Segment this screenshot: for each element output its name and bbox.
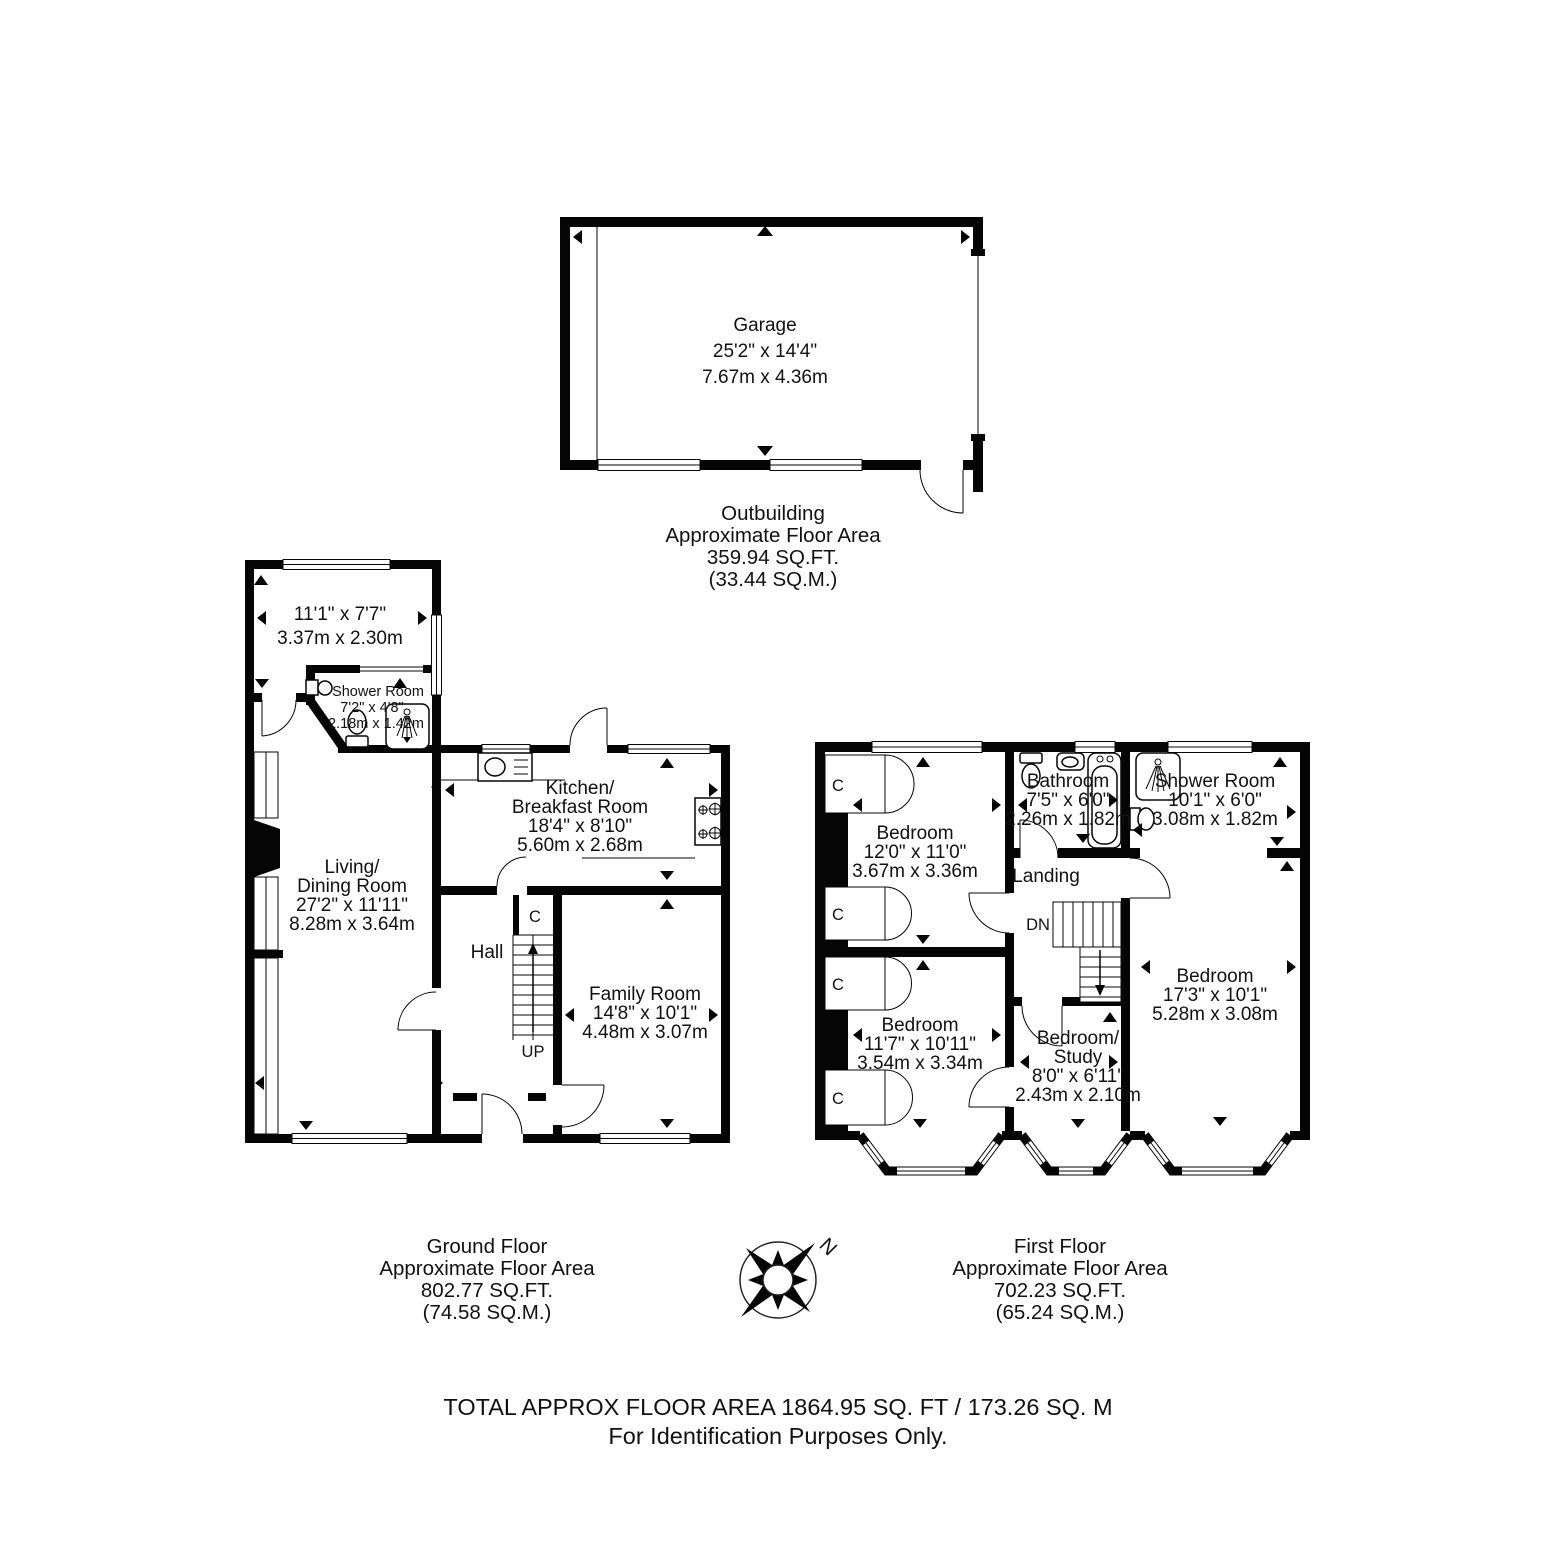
- bedroom3-name: Bedroom: [1176, 966, 1253, 987]
- ground-floor-caption: Ground Floor Approximate Floor Area 802.…: [379, 1235, 595, 1324]
- ground-caption-sqm: (74.58 SQ.M.): [423, 1301, 552, 1324]
- garage-plan: Garage 25'2" x 14'4" 7.67m x 4.36m: [560, 217, 985, 513]
- first-floor-bay-windows: [860, 1135, 1290, 1171]
- first-caption-title: First Floor: [1014, 1235, 1106, 1258]
- ground-floor-stairs: [513, 935, 553, 1040]
- outbuilding-caption-area-label: Approximate Floor Area: [665, 524, 881, 547]
- first-caption-sqm: (65.24 SQ.M.): [996, 1301, 1125, 1324]
- family-room-dims-metric: 4.48m x 3.07m: [582, 1022, 708, 1043]
- ground-floor-plan: 11'1" x 7'7" 3.37m x 2.30m Shower Room 7…: [245, 560, 730, 1145]
- kitchen-dims-metric: 5.60m x 2.68m: [517, 835, 643, 856]
- kitchen-name-1: Kitchen/: [546, 778, 615, 799]
- living-room-dims-imperial: 27'2" x 11'11": [296, 895, 408, 916]
- ff-shower-dims-imperial: 10'1" x 6'0": [1168, 790, 1262, 811]
- bedroom2-dims-imperial: 11'7" x 10'11": [864, 1034, 976, 1055]
- first-caption-sqft: 702.23 SQ.FT.: [994, 1279, 1126, 1302]
- first-floor-plan: Bedroom 12'0" x 11'0" 3.67m x 3.36m Bath…: [815, 742, 1310, 1172]
- top-room-dims-metric: 3.37m x 2.30m: [277, 628, 403, 649]
- kitchen-name-2: Breakfast Room: [512, 797, 648, 818]
- garage-entry-door: [920, 470, 963, 513]
- ground-caption-sqft: 802.77 SQ.FT.: [421, 1279, 553, 1302]
- living-room-name-1: Living/: [325, 857, 381, 878]
- ground-caption-title: Ground Floor: [427, 1235, 548, 1258]
- first-floor-stairs: [1053, 902, 1121, 1002]
- garage-windows: [598, 256, 984, 471]
- ground-caption-area-label: Approximate Floor Area: [379, 1257, 595, 1280]
- garage-dims-metric: 7.67m x 4.36m: [702, 367, 828, 388]
- garage-room-name: Garage: [733, 315, 796, 336]
- bedroom3-dims-metric: 5.28m x 3.08m: [1152, 1004, 1278, 1025]
- sink-icon: [306, 680, 318, 695]
- compass-rose: N: [740, 1234, 841, 1318]
- landing-name: Landing: [1012, 866, 1080, 887]
- outbuilding-caption-sqft: 359.94 SQ.FT.: [707, 546, 839, 569]
- closet-label: C: [832, 1090, 844, 1108]
- living-room-name-2: Dining Room: [297, 876, 407, 897]
- family-room-dims-imperial: 14'8" x 10'1": [593, 1003, 697, 1024]
- study-dims-metric: 2.43m x 2.10m: [1015, 1085, 1141, 1106]
- closet-label: C: [529, 908, 541, 926]
- family-room-name: Family Room: [589, 984, 701, 1005]
- toilet-icon: [1020, 753, 1042, 763]
- closet-label: C: [832, 976, 844, 994]
- bathroom-dims-imperial: 7'5" x 6'0": [1026, 790, 1109, 811]
- bedroom2-dims-metric: 3.54m x 3.34m: [857, 1053, 983, 1074]
- first-floor-caption: First Floor Approximate Floor Area 702.2…: [952, 1235, 1168, 1324]
- closet-label: C: [832, 906, 844, 924]
- bedroom2-name: Bedroom: [881, 1015, 958, 1036]
- compass-north-label: N: [815, 1234, 842, 1261]
- garage-dims-imperial: 25'2" x 14'4": [713, 341, 817, 362]
- shower-room-name: Shower Room: [332, 684, 424, 700]
- outbuilding-caption: Outbuilding Approximate Floor Area 359.9…: [665, 502, 881, 591]
- first-caption-area-label: Approximate Floor Area: [952, 1257, 1168, 1280]
- bedroom3-dims-imperial: 17'3" x 10'1": [1163, 985, 1267, 1006]
- shower-room-dims-metric: 2.18m x 1.42m: [328, 716, 424, 732]
- footer-disclaimer: For Identification Purposes Only.: [608, 1423, 947, 1449]
- shower-room-dims-imperial: 7'2" x 4'8": [340, 700, 403, 716]
- bedroom1-name: Bedroom: [876, 823, 953, 844]
- stairs-down-label: DN: [1026, 916, 1050, 934]
- study-dims-imperial: 8'0" x 6'11": [1032, 1066, 1124, 1087]
- top-room-dims-imperial: 11'1" x 7'7": [294, 604, 386, 625]
- closet-label: C: [832, 777, 844, 795]
- bathroom-name: Bathroom: [1027, 771, 1109, 792]
- bedroom1-dims-metric: 3.67m x 3.36m: [852, 861, 978, 882]
- ground-floor-arrows: [254, 575, 718, 1130]
- hall-name: Hall: [471, 942, 504, 963]
- kitchen-dims-imperial: 18'4" x 8'10": [528, 816, 632, 837]
- study-name-2: Study: [1054, 1047, 1103, 1068]
- outbuilding-caption-sqm: (33.44 SQ.M.): [709, 568, 838, 591]
- floorplan-svg: Garage 25'2" x 14'4" 7.67m x 4.36m Outbu…: [0, 0, 1550, 1550]
- living-room-dims-metric: 8.28m x 3.64m: [289, 914, 415, 935]
- ff-shower-room-name: Shower Room: [1155, 771, 1275, 792]
- bathroom-dims-metric: 2.26m x 1.82m: [1005, 809, 1131, 830]
- ff-shower-dims-metric: 3.08m x 1.82m: [1152, 809, 1278, 830]
- footer-total-area: TOTAL APPROX FLOOR AREA 1864.95 SQ. FT /…: [443, 1394, 1112, 1420]
- footer: TOTAL APPROX FLOOR AREA 1864.95 SQ. FT /…: [443, 1394, 1112, 1449]
- study-name-1: Bedroom/: [1037, 1028, 1120, 1049]
- bedroom1-dims-imperial: 12'0" x 11'0": [864, 842, 967, 863]
- outbuilding-caption-title: Outbuilding: [721, 502, 825, 525]
- floorplan-page: Garage 25'2" x 14'4" 7.67m x 4.36m Outbu…: [0, 0, 1550, 1550]
- stairs-up-label: UP: [522, 1043, 545, 1061]
